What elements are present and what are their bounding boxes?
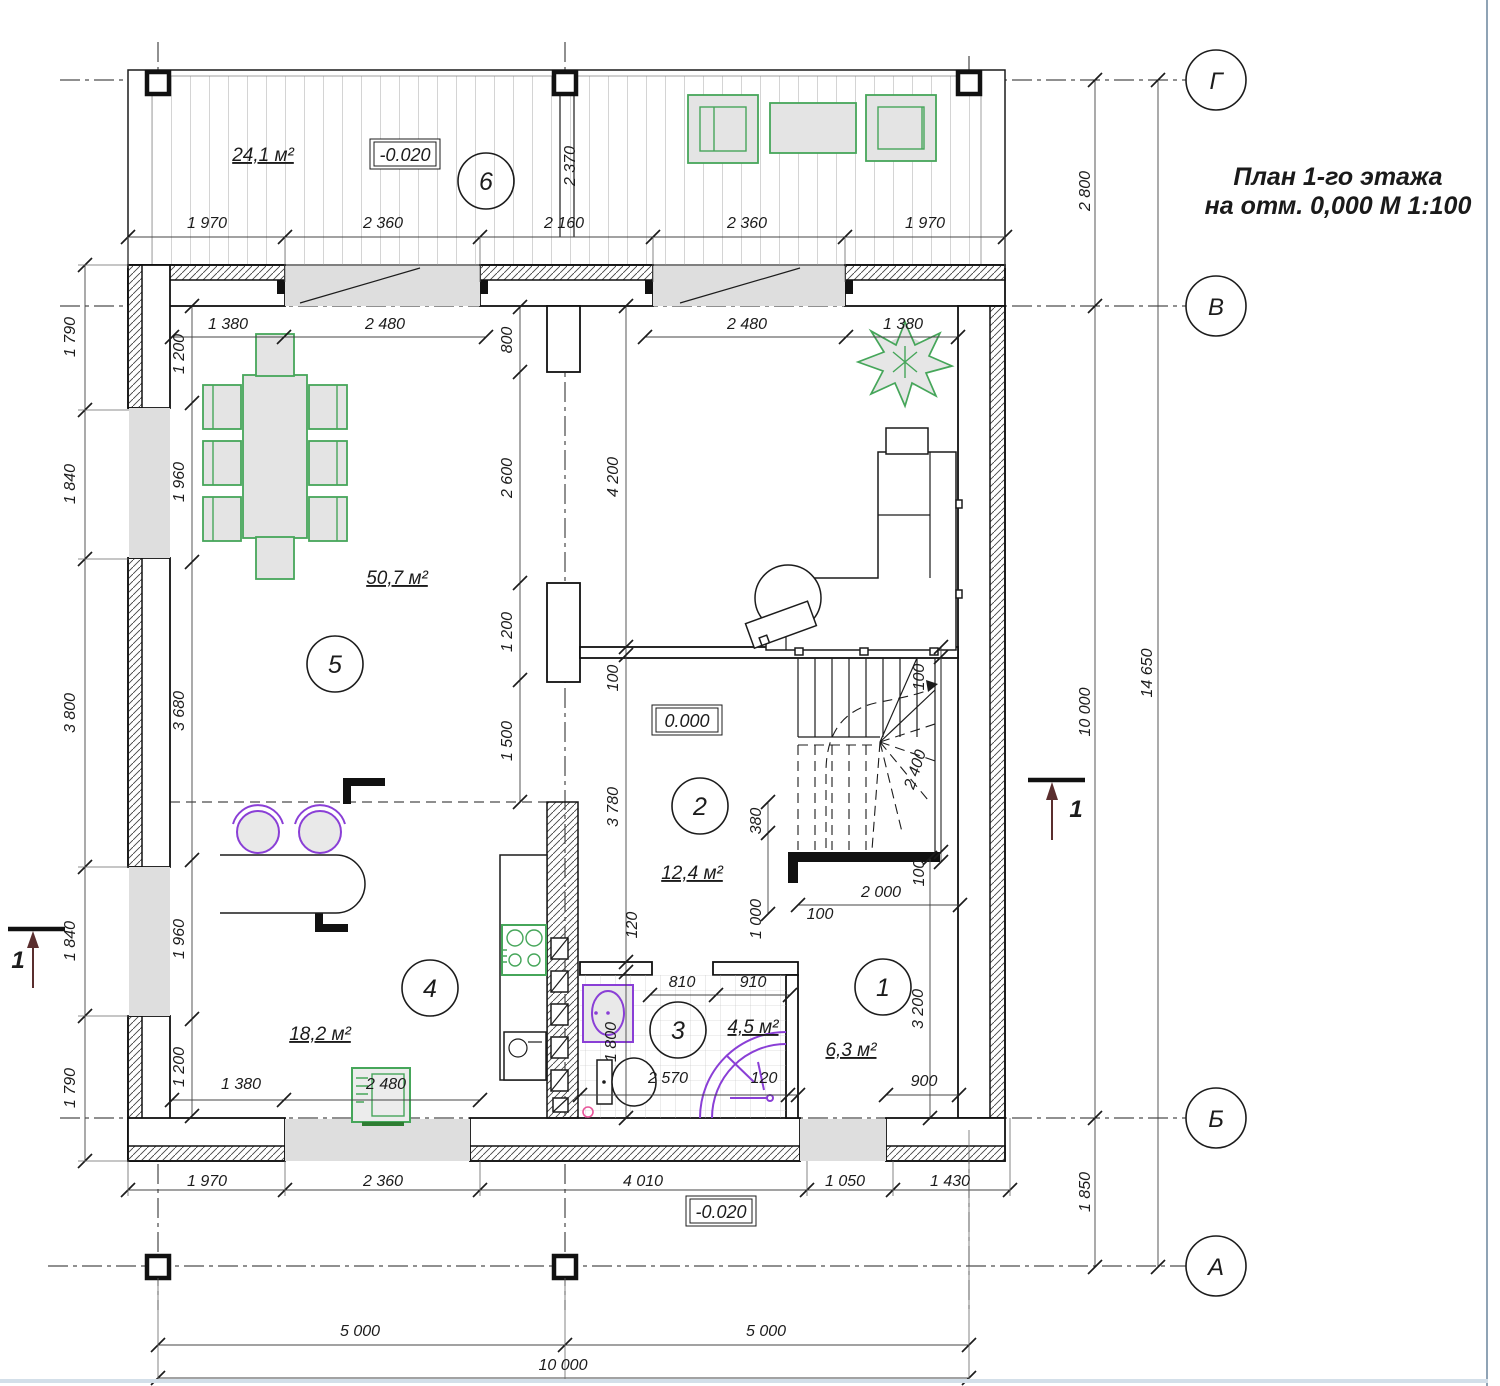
column bbox=[554, 1256, 576, 1278]
section-number: 1 bbox=[1069, 796, 1082, 823]
room-area-label: 18,2 м² bbox=[289, 1024, 351, 1045]
dim-label: 2 360 bbox=[726, 215, 767, 232]
window-opening bbox=[129, 867, 170, 1016]
room-number: 4 bbox=[423, 975, 437, 1003]
room-area-label: 6,3 м² bbox=[825, 1040, 877, 1061]
dim-label: 1 200 bbox=[499, 612, 516, 652]
dim-label: 4 010 bbox=[623, 1173, 663, 1190]
stove-icon bbox=[502, 925, 546, 975]
window-opening bbox=[129, 408, 170, 558]
dim-label: 5 000 bbox=[746, 1323, 786, 1340]
dim-label: 1 790 bbox=[62, 317, 79, 357]
room-number: 2 bbox=[692, 793, 707, 821]
kitchen-bar-counter bbox=[220, 855, 365, 913]
dim-label: 1 960 bbox=[171, 919, 188, 959]
dim-label: 1 970 bbox=[187, 215, 227, 232]
axis-label: В bbox=[1208, 294, 1224, 321]
dining-set bbox=[203, 334, 347, 579]
dim-label: 2 400 bbox=[901, 748, 930, 792]
door-opening bbox=[653, 266, 845, 306]
dim-label: 1 500 bbox=[499, 721, 516, 761]
dim-label: 1 000 bbox=[748, 899, 765, 939]
elevation-value: -0.020 bbox=[695, 1202, 746, 1222]
dim-label: 1 840 bbox=[62, 464, 79, 504]
room-area-label: 4,5 м² bbox=[727, 1017, 779, 1038]
sink-cabinet-icon bbox=[504, 1032, 546, 1080]
section-number: 1 bbox=[11, 947, 24, 974]
drawing-title: План 1-го этажа на отм. 0,000 М 1:100 bbox=[1178, 163, 1498, 221]
dim-label: 14 650 bbox=[1139, 648, 1156, 697]
dim-label: 100 bbox=[911, 860, 928, 887]
dim-label: 800 bbox=[499, 327, 516, 354]
room-area-label: 50,7 м² bbox=[366, 568, 428, 589]
dim-label: 1 050 bbox=[825, 1173, 865, 1190]
bar-stool-icon bbox=[299, 811, 341, 853]
door-opening bbox=[800, 1119, 886, 1161]
sheet-border-right bbox=[1486, 0, 1488, 1386]
dim-label: 2 370 bbox=[562, 146, 579, 187]
dim-label: 1 970 bbox=[187, 1173, 227, 1190]
dim-label: 1 380 bbox=[883, 316, 923, 333]
dim-label: 1 840 bbox=[62, 921, 79, 961]
dim-label: 4 200 bbox=[605, 457, 622, 497]
dim-label: 2 480 bbox=[365, 1076, 406, 1093]
dim-label: 3 200 bbox=[910, 989, 927, 1029]
dim-label: 1 380 bbox=[221, 1076, 261, 1093]
dim-label: 100 bbox=[807, 906, 834, 923]
dim-label: 120 bbox=[624, 912, 641, 939]
dim-label: 2 480 bbox=[726, 316, 767, 333]
column bbox=[958, 72, 980, 94]
dim-label: 2 800 bbox=[1077, 171, 1094, 212]
page: 1 9702 3602 1602 3601 9701 3802 4802 480… bbox=[0, 0, 1500, 1386]
room-number: 3 bbox=[671, 1017, 685, 1045]
dim-label: 100 bbox=[605, 665, 622, 692]
room-area-label: 12,4 м² bbox=[661, 863, 723, 884]
elevation-value: 0.000 bbox=[664, 711, 709, 731]
dim-label: 2 570 bbox=[647, 1070, 688, 1087]
dim-label: 100 bbox=[911, 664, 928, 691]
dim-label: 900 bbox=[911, 1073, 938, 1090]
column bbox=[147, 72, 169, 94]
dim-label: 1 850 bbox=[1077, 1172, 1094, 1212]
dim-label: 910 bbox=[740, 974, 767, 991]
lounge bbox=[745, 322, 962, 655]
plant-icon bbox=[858, 322, 952, 406]
dim-label: 10 000 bbox=[539, 1357, 588, 1374]
title-line-2: на отм. 0,000 М 1:100 bbox=[1178, 192, 1498, 221]
dim-label: 1 200 bbox=[171, 1047, 188, 1087]
elevation-value: -0.020 bbox=[379, 145, 430, 165]
dim-label: 3 800 bbox=[62, 693, 79, 733]
dim-label: 1 960 bbox=[171, 462, 188, 502]
dim-label: 1 200 bbox=[171, 334, 188, 374]
dim-label: 3 780 bbox=[605, 787, 622, 827]
dim-label: 5 000 bbox=[340, 1323, 380, 1340]
dim-label: 1 430 bbox=[930, 1173, 970, 1190]
terrace-armchair bbox=[866, 95, 936, 161]
dim-label: 1 790 bbox=[62, 1068, 79, 1108]
column bbox=[554, 72, 576, 94]
room-area-label: 24,1 м² bbox=[231, 145, 294, 166]
dim-label: 2 480 bbox=[364, 316, 405, 333]
axis-label: Г bbox=[1209, 68, 1224, 95]
door-opening bbox=[285, 266, 480, 306]
dim-label: 2 360 bbox=[362, 1173, 403, 1190]
room-number: 1 bbox=[876, 974, 890, 1002]
dim-label: 2 360 bbox=[362, 215, 403, 232]
axis-label: Б bbox=[1208, 1106, 1224, 1133]
dim-label: 1 800 bbox=[603, 1022, 620, 1062]
terrace-table bbox=[770, 103, 856, 153]
dim-label: 3 680 bbox=[171, 691, 188, 731]
axis-label: А bbox=[1206, 1254, 1224, 1281]
sheet-border-bottom bbox=[0, 1379, 1488, 1383]
room-number: 5 bbox=[328, 651, 342, 679]
dim-label: 2 160 bbox=[543, 215, 584, 232]
dim-label: 120 bbox=[751, 1070, 778, 1087]
pier bbox=[343, 778, 385, 804]
dim-label: 2 000 bbox=[860, 884, 901, 901]
dim-label: 10 000 bbox=[1077, 687, 1094, 736]
dining-table-icon bbox=[243, 375, 307, 538]
terrace-armchair bbox=[688, 95, 758, 163]
title-line-1: План 1-го этажа bbox=[1178, 163, 1498, 192]
dim-label: 380 bbox=[748, 808, 765, 835]
column bbox=[147, 1256, 169, 1278]
dim-label: 1 380 bbox=[208, 316, 248, 333]
bar-stool-icon bbox=[237, 811, 279, 853]
dim-label: 1 970 bbox=[905, 215, 945, 232]
dim-label: 810 bbox=[669, 974, 696, 991]
dim-label: 2 600 bbox=[499, 458, 516, 499]
room-number: 6 bbox=[479, 168, 493, 196]
